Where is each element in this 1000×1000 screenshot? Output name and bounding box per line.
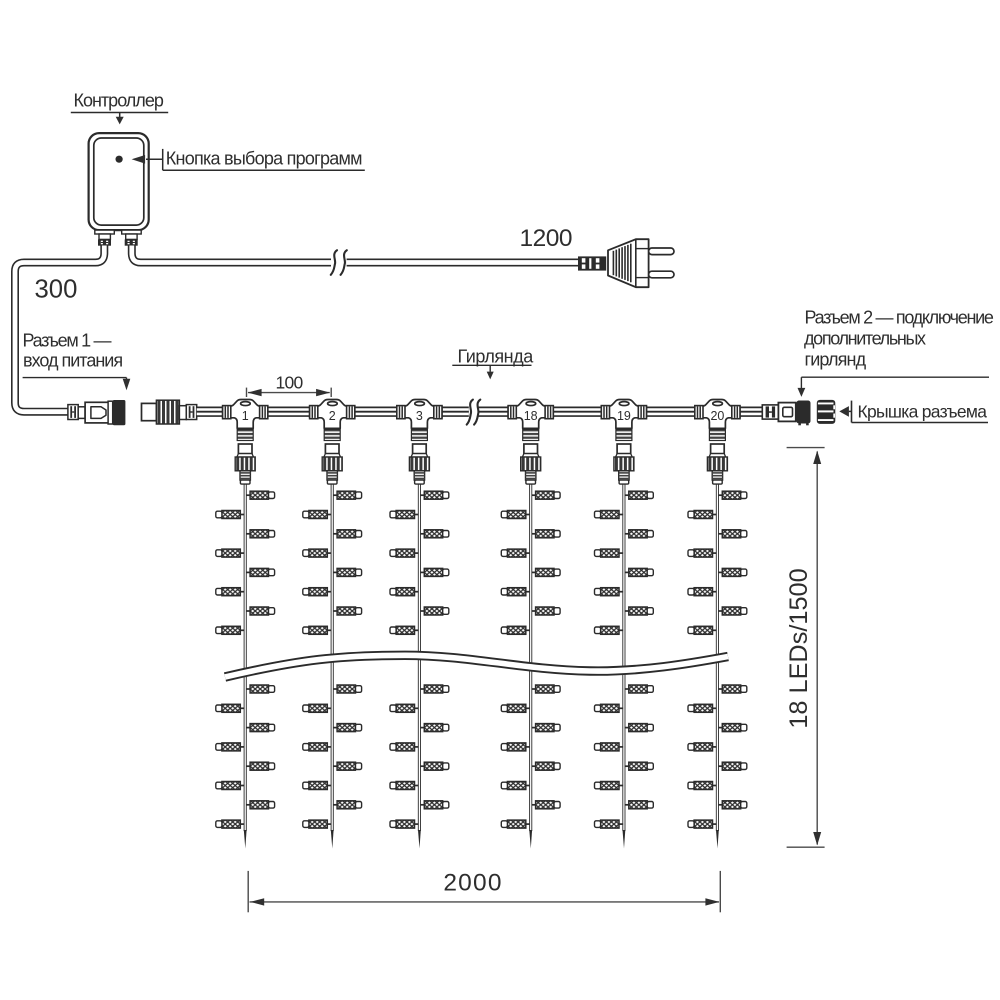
svg-text:18: 18 — [524, 409, 538, 423]
svg-text:вход питания: вход питания — [23, 350, 122, 370]
svg-text:Крышка разъема: Крышка разъема — [858, 402, 988, 422]
svg-text:3: 3 — [416, 409, 423, 423]
svg-text:Контроллер: Контроллер — [74, 91, 164, 111]
svg-text:Разъем 2 — подключение: Разъем 2 — подключение — [805, 307, 994, 327]
svg-text:300: 300 — [35, 276, 78, 304]
svg-text:Кнопка выбора программ: Кнопка выбора программ — [166, 148, 362, 168]
svg-text:дополнительных: дополнительных — [804, 328, 926, 348]
svg-text:2000: 2000 — [443, 870, 502, 897]
svg-text:1200: 1200 — [520, 225, 573, 252]
svg-text:Разъем 1 —: Разъем 1 — — [23, 330, 112, 350]
svg-text:18 LEDs/1500: 18 LEDs/1500 — [785, 568, 813, 728]
svg-text:2: 2 — [329, 409, 336, 423]
svg-text:гирлянд: гирлянд — [805, 349, 867, 369]
svg-text:1: 1 — [242, 409, 249, 423]
svg-text:20: 20 — [710, 409, 724, 423]
svg-text:Гирлянда: Гирлянда — [458, 347, 535, 367]
svg-text:19: 19 — [617, 409, 631, 423]
svg-text:100: 100 — [275, 372, 303, 392]
